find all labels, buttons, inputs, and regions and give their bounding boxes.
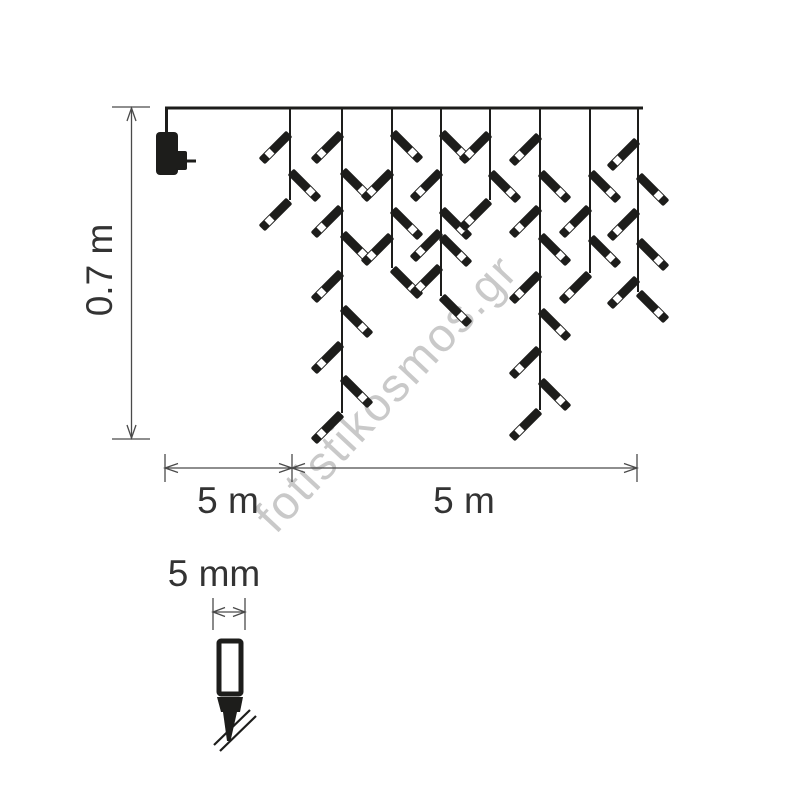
led-bulb-icon <box>410 264 444 298</box>
led-bulb-detail-icon <box>214 641 256 751</box>
led-bulb-icon <box>509 408 543 442</box>
led-bulb-icon <box>311 341 345 375</box>
span-length-label: 5 m <box>433 480 495 521</box>
light-strand <box>311 108 374 444</box>
led-bulb-icon <box>311 205 345 239</box>
height-dimension: 0.7 m <box>79 107 150 439</box>
led-bulb-icon <box>509 133 543 167</box>
led-bulb-icon <box>636 290 670 324</box>
led-bulb-icon <box>559 205 593 239</box>
diagram-canvas: fotistikosmos.gr 0.7 m 5 m 5 m 5 m <box>0 0 800 800</box>
led-bulb-icon <box>390 207 424 241</box>
led-bulb-icon <box>509 205 543 239</box>
led-bulb-icon <box>259 131 293 165</box>
bulb-detail: 5 mm <box>168 553 261 751</box>
icicle-lights-diagram: fotistikosmos.gr 0.7 m 5 m 5 m 5 m <box>0 0 800 800</box>
led-bulb-icon <box>488 170 522 204</box>
led-bulb-icon <box>607 276 641 310</box>
led-bulb-icon <box>509 346 543 380</box>
led-bulb-icon <box>361 169 395 203</box>
length-dimensions: 5 m 5 m <box>165 454 637 521</box>
led-bulb-icon <box>538 308 572 342</box>
light-strand <box>559 108 622 304</box>
light-strand <box>607 108 670 323</box>
light-strand <box>459 108 522 231</box>
led-bulb-icon <box>607 138 641 172</box>
bulb-width-label: 5 mm <box>168 553 261 594</box>
led-bulb-icon <box>538 378 572 412</box>
led-bulb-icon <box>588 235 622 269</box>
led-bulb-icon <box>607 208 641 242</box>
light-strand <box>361 108 424 299</box>
light-strand <box>259 108 322 231</box>
led-bulb-icon <box>538 233 572 267</box>
led-bulb-icon <box>636 238 670 272</box>
led-bulb-icon <box>559 271 593 305</box>
led-bulb-icon <box>459 198 493 232</box>
led-bulb-icon <box>588 170 622 204</box>
led-bulb-icon <box>311 270 345 304</box>
led-bulb-icon <box>361 233 395 267</box>
led-bulb-icon <box>538 170 572 204</box>
led-bulb-icon <box>259 198 293 232</box>
led-bulb-icon <box>288 169 322 203</box>
led-bulb-icon <box>410 169 444 203</box>
led-bulb-icon <box>340 305 374 339</box>
lead-length-label: 5 m <box>197 480 259 521</box>
power-adapter-icon <box>156 108 196 175</box>
led-bulb-icon <box>311 131 345 165</box>
led-bulb-icon <box>636 173 670 207</box>
height-dimension-label: 0.7 m <box>79 224 120 317</box>
led-bulb-icon <box>390 130 424 164</box>
led-bulb-icon <box>459 131 493 165</box>
